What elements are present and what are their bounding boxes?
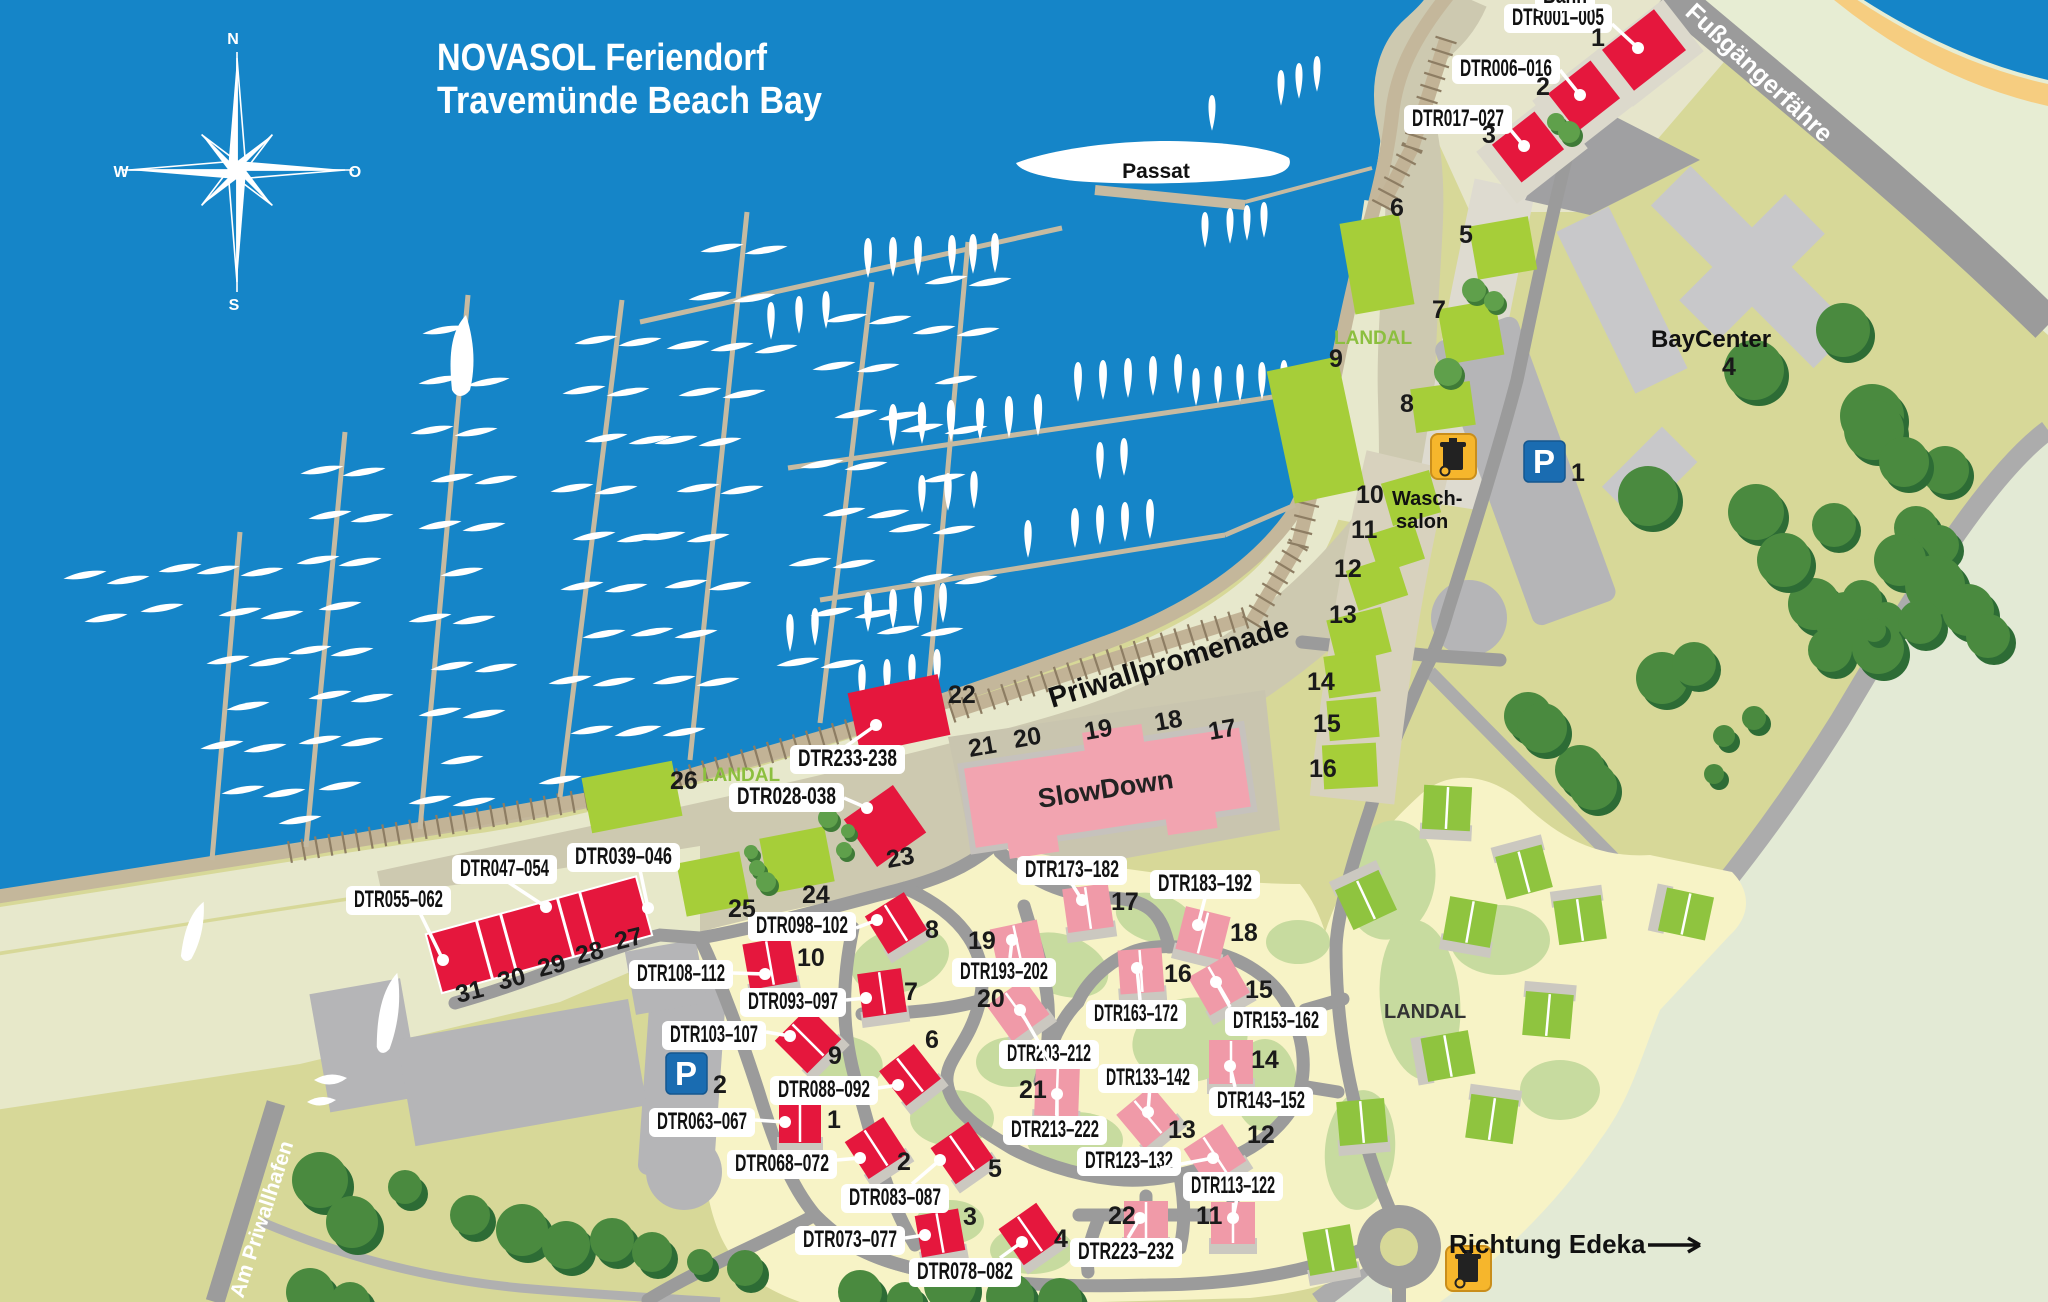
svg-text:DTR055–062: DTR055–062 bbox=[354, 886, 443, 913]
svg-text:DTR203–212: DTR203–212 bbox=[1007, 1040, 1091, 1067]
svg-text:1: 1 bbox=[1571, 459, 1585, 487]
svg-text:2: 2 bbox=[713, 1071, 727, 1099]
svg-text:8: 8 bbox=[1400, 390, 1414, 418]
svg-text:9: 9 bbox=[1329, 345, 1343, 373]
svg-text:10: 10 bbox=[1356, 481, 1384, 509]
svg-text:8: 8 bbox=[925, 916, 939, 944]
svg-text:13: 13 bbox=[1168, 1116, 1196, 1144]
svg-text:2: 2 bbox=[897, 1148, 911, 1176]
svg-text:14: 14 bbox=[1251, 1046, 1279, 1074]
svg-text:14: 14 bbox=[1307, 668, 1335, 696]
svg-text:NOVASOL Feriendorf: NOVASOL Feriendorf bbox=[437, 37, 767, 79]
svg-text:22: 22 bbox=[1108, 1202, 1136, 1230]
svg-text:11: 11 bbox=[1351, 516, 1378, 544]
svg-text:5: 5 bbox=[1459, 221, 1473, 249]
svg-text:N: N bbox=[227, 31, 239, 48]
svg-text:DTR093–097: DTR093–097 bbox=[748, 988, 838, 1015]
svg-text:DTR113–122: DTR113–122 bbox=[1191, 1172, 1275, 1199]
svg-text:16: 16 bbox=[1309, 755, 1337, 783]
svg-text:DTR173–182: DTR173–182 bbox=[1025, 856, 1119, 883]
svg-text:23: 23 bbox=[884, 842, 916, 874]
svg-text:W: W bbox=[113, 164, 129, 181]
svg-text:15: 15 bbox=[1245, 976, 1273, 1004]
svg-text:BayCenter: BayCenter bbox=[1651, 326, 1771, 353]
svg-text:13: 13 bbox=[1329, 601, 1357, 629]
svg-text:3: 3 bbox=[963, 1203, 977, 1231]
svg-text:15: 15 bbox=[1313, 710, 1341, 738]
svg-text:DTR163–172: DTR163–172 bbox=[1094, 1000, 1178, 1027]
svg-text:Passat: Passat bbox=[1122, 160, 1190, 183]
svg-text:18: 18 bbox=[1152, 704, 1184, 736]
svg-text:21: 21 bbox=[1019, 1076, 1047, 1104]
svg-text:19: 19 bbox=[1082, 714, 1114, 746]
svg-text:S: S bbox=[229, 297, 240, 314]
svg-text:18: 18 bbox=[1230, 919, 1258, 947]
svg-text:22: 22 bbox=[948, 681, 976, 709]
svg-text:DTR088–092: DTR088–092 bbox=[778, 1076, 870, 1103]
svg-text:5: 5 bbox=[988, 1155, 1002, 1183]
svg-text:2: 2 bbox=[1536, 73, 1550, 101]
svg-text:LANDAL: LANDAL bbox=[1384, 1001, 1466, 1023]
svg-text:20: 20 bbox=[977, 985, 1005, 1013]
svg-text:1: 1 bbox=[1591, 24, 1605, 52]
svg-text:P: P bbox=[675, 1055, 697, 1092]
svg-text:DTR083–087: DTR083–087 bbox=[849, 1184, 941, 1211]
svg-text:7: 7 bbox=[1432, 296, 1446, 324]
svg-text:19: 19 bbox=[968, 927, 996, 955]
svg-text:DTR098–102: DTR098–102 bbox=[756, 912, 848, 939]
svg-text:DTR047–054: DTR047–054 bbox=[460, 855, 549, 882]
svg-text:17: 17 bbox=[1111, 888, 1139, 916]
svg-text:DTR223–232: DTR223–232 bbox=[1078, 1238, 1174, 1265]
svg-text:DTR039–046: DTR039–046 bbox=[575, 843, 672, 870]
svg-text:20: 20 bbox=[1011, 722, 1043, 754]
svg-text:26: 26 bbox=[670, 767, 698, 795]
svg-text:DTR108–112: DTR108–112 bbox=[637, 960, 725, 987]
svg-text:9: 9 bbox=[828, 1042, 842, 1070]
svg-text:DTR133–142: DTR133–142 bbox=[1106, 1064, 1190, 1091]
svg-text:4: 4 bbox=[1054, 1225, 1068, 1253]
svg-text:17: 17 bbox=[1206, 714, 1238, 746]
svg-text:O: O bbox=[349, 164, 361, 181]
svg-text:P: P bbox=[1533, 443, 1555, 480]
svg-text:Travemünde Beach Bay: Travemünde Beach Bay bbox=[437, 80, 822, 122]
svg-text:21: 21 bbox=[966, 730, 998, 762]
svg-text:DTR068–072: DTR068–072 bbox=[735, 1150, 829, 1177]
svg-text:DTR183–192: DTR183–192 bbox=[1158, 870, 1252, 897]
svg-text:1: 1 bbox=[827, 1106, 841, 1134]
svg-text:24: 24 bbox=[802, 881, 830, 909]
svg-text:6: 6 bbox=[1390, 194, 1404, 222]
svg-text:DTR073–077: DTR073–077 bbox=[803, 1226, 897, 1253]
svg-text:16: 16 bbox=[1164, 960, 1192, 988]
svg-text:DTR028-038: DTR028-038 bbox=[737, 783, 836, 810]
svg-text:4: 4 bbox=[1722, 353, 1736, 381]
svg-text:12: 12 bbox=[1334, 555, 1362, 583]
svg-text:DTR233-238: DTR233-238 bbox=[798, 745, 897, 772]
svg-text:6: 6 bbox=[925, 1026, 939, 1054]
svg-text:DTR063–067: DTR063–067 bbox=[657, 1108, 747, 1135]
svg-text:Richtung Edeka: Richtung Edeka bbox=[1449, 1229, 1646, 1259]
svg-text:DTR123–132: DTR123–132 bbox=[1085, 1147, 1173, 1174]
svg-text:10: 10 bbox=[797, 944, 825, 972]
svg-text:25: 25 bbox=[728, 895, 756, 923]
svg-text:DTR193–202: DTR193–202 bbox=[960, 958, 1048, 985]
svg-text:DTR078–082: DTR078–082 bbox=[917, 1258, 1013, 1285]
svg-text:LANDAL: LANDAL bbox=[1334, 328, 1412, 349]
svg-text:DTR143–152: DTR143–152 bbox=[1217, 1087, 1305, 1114]
svg-text:7: 7 bbox=[904, 978, 918, 1006]
svg-text:DTR153–162: DTR153–162 bbox=[1233, 1007, 1319, 1034]
svg-text:12: 12 bbox=[1247, 1121, 1275, 1149]
svg-text:Bahn: Bahn bbox=[1543, 0, 1587, 9]
svg-text:3: 3 bbox=[1482, 121, 1496, 149]
svg-text:LANDAL: LANDAL bbox=[702, 765, 780, 786]
svg-text:DTR213–222: DTR213–222 bbox=[1011, 1116, 1099, 1143]
svg-text:11: 11 bbox=[1196, 1202, 1223, 1230]
svg-text:DTR103–107: DTR103–107 bbox=[670, 1021, 758, 1048]
